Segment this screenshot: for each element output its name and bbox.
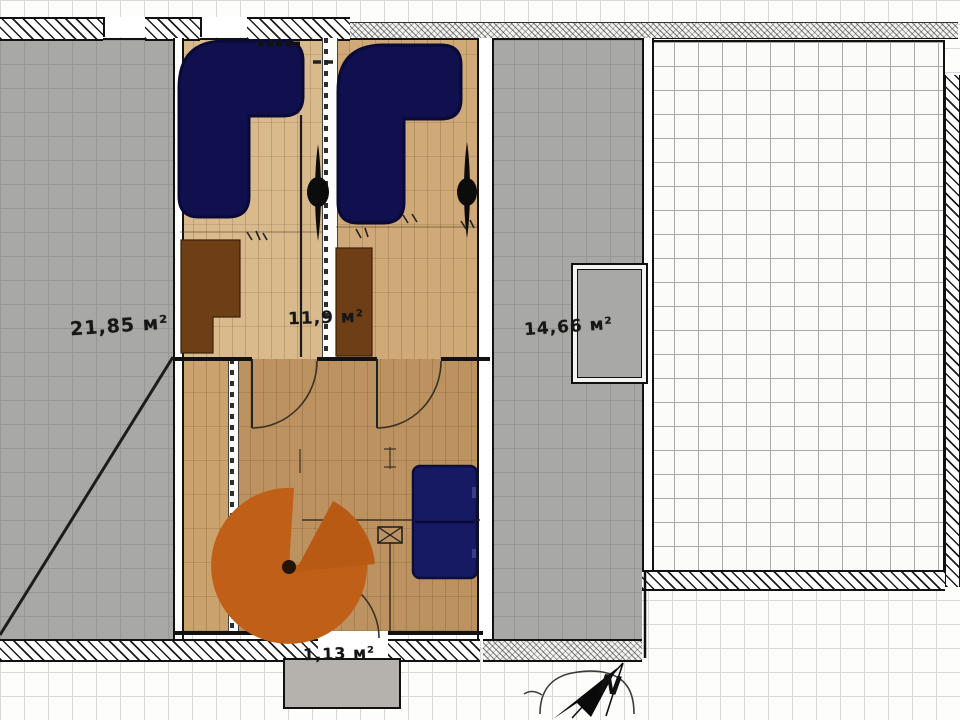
window-opening [103, 17, 149, 37]
wall-mid-horizontal [317, 357, 377, 361]
balcony [283, 658, 401, 709]
area-label-balcony: 1,13 м² [303, 643, 376, 665]
room-left-gray [0, 38, 173, 641]
wall-mid-horizontal [441, 357, 490, 361]
room-bottom-floor [237, 359, 477, 631]
wall-left-vertical [173, 38, 184, 640]
window-opening [200, 17, 251, 37]
area-label-top-middle-room: 11,9 м² [288, 307, 365, 330]
exterior-wall-bottom-middle [483, 639, 642, 662]
floor-plan-canvas: N 21,85 м² 11,9 м² 14,66 м² 1,13 м² [0, 0, 960, 720]
wall-mid-horizontal [173, 357, 252, 361]
room-bottom-left-strip [180, 359, 228, 631]
room-top-right-white [650, 40, 945, 572]
wall-dashed-bottom [228, 359, 239, 631]
exterior-wall-top [0, 17, 103, 41]
wall-right-vertical [477, 38, 494, 641]
exterior-wall-top-right [350, 22, 958, 39]
exterior-wall-bottom-left [0, 639, 480, 662]
exterior-wall-bottom-right [642, 570, 945, 591]
exterior-wall-right [945, 75, 960, 587]
